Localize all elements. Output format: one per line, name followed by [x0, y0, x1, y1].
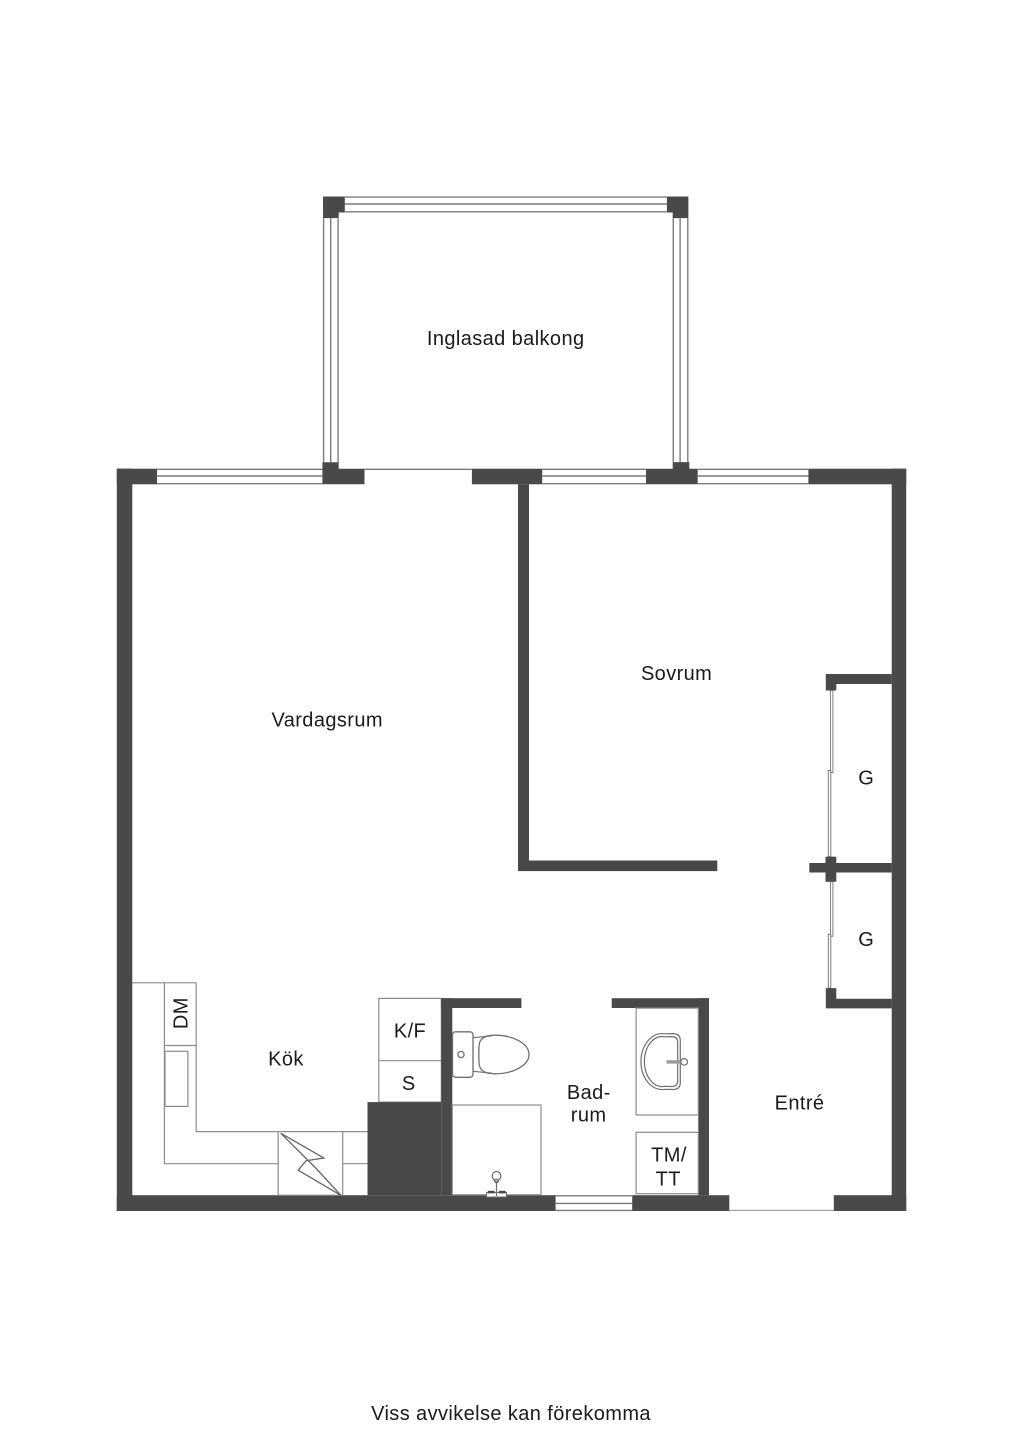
- svg-text:Kök: Kök: [268, 1049, 304, 1071]
- svg-text:TT: TT: [656, 1169, 681, 1191]
- svg-text:rum: rum: [571, 1105, 607, 1127]
- svg-text:Vardagsrum: Vardagsrum: [271, 710, 382, 732]
- svg-text:S: S: [402, 1073, 416, 1095]
- svg-text:K/F: K/F: [394, 1021, 426, 1043]
- svg-text:Sovrum: Sovrum: [641, 663, 712, 685]
- svg-text:G: G: [858, 767, 874, 789]
- svg-text:Viss avvikelse kan förekomma: Viss avvikelse kan förekomma: [371, 1403, 651, 1425]
- svg-text:Entré: Entré: [775, 1093, 825, 1115]
- svg-text:Inglasad balkong: Inglasad balkong: [427, 328, 585, 350]
- svg-text:DM: DM: [171, 997, 193, 1029]
- svg-text:TM/: TM/: [651, 1145, 687, 1167]
- svg-text:Bad-: Bad-: [567, 1082, 611, 1104]
- svg-text:G: G: [858, 929, 874, 951]
